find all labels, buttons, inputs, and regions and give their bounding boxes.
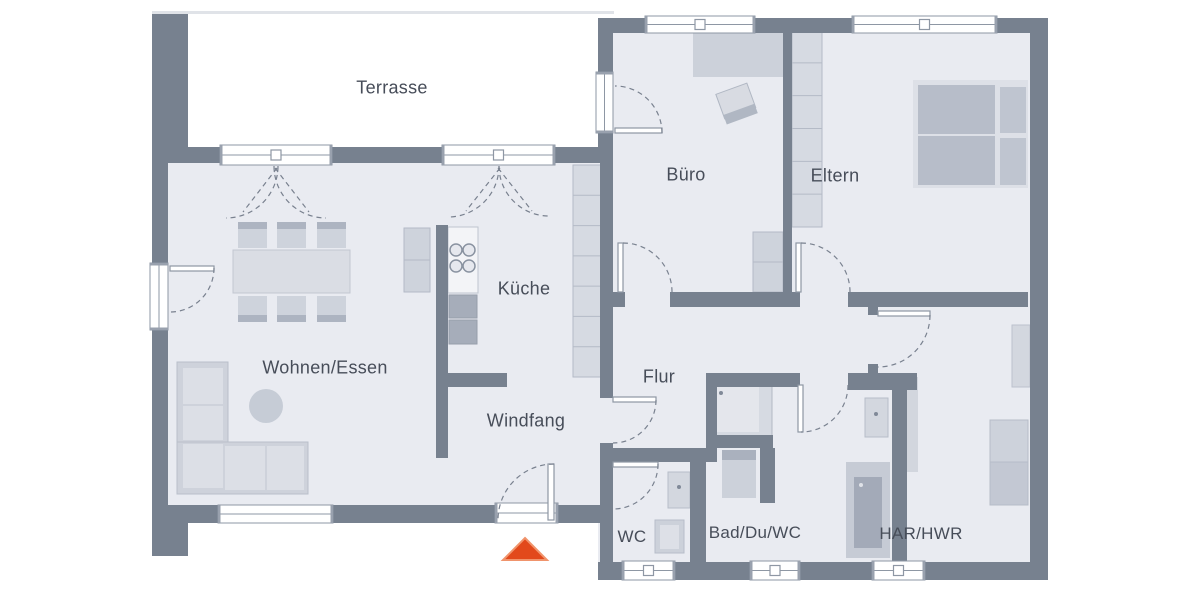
bad-sink [722, 460, 756, 498]
kitchen-counter [573, 165, 601, 377]
wall [868, 307, 878, 315]
room-label-har-hwr: HAR/HWR [879, 524, 962, 544]
kitchen-island [448, 227, 478, 293]
buero-terrace-door-jamb [596, 72, 613, 75]
bad-south-window-jamb [750, 561, 753, 580]
wall [152, 14, 188, 158]
eltern-door-swing-leaf [796, 243, 801, 292]
shower-drain [859, 483, 863, 487]
sofa-cushion [225, 446, 265, 490]
entrance-door-frame-jamb [556, 503, 559, 523]
room-label-kueche: Küche [498, 279, 551, 300]
wc-toilet [668, 472, 690, 508]
washer [990, 420, 1028, 462]
har-south-window-jamb [923, 561, 926, 580]
buero-north-window-jamb [753, 16, 756, 33]
wc-sink-basin [660, 525, 679, 549]
bed-mattress [918, 85, 995, 134]
bad-toilet [865, 398, 888, 437]
buero-door-swing-leaf [618, 243, 623, 292]
entrance-door-frame-jamb [495, 503, 498, 523]
terrace-door-left-jamb [330, 145, 333, 165]
wall [690, 448, 706, 563]
eltern-north-window-jamb [852, 16, 855, 33]
wall [1030, 18, 1048, 580]
bed-pillow [1000, 87, 1026, 133]
bathtub-drain [719, 391, 723, 395]
wall [152, 158, 168, 505]
chair-backrest [317, 222, 346, 229]
bad-toilet-dot [874, 412, 878, 416]
har-cabinet [1012, 325, 1030, 387]
terrace-door-right-center-mark [494, 150, 504, 160]
entrance-arrow [503, 538, 547, 560]
wc-south-window-jamb [622, 561, 625, 580]
living-west-door-swing-leaf [170, 266, 214, 271]
chair-backrest [277, 315, 306, 322]
sofa-cushion [267, 446, 304, 490]
har-south-window-center-mark [894, 566, 904, 576]
room-label-wohnen-essen: Wohnen/Essen [262, 358, 387, 379]
room-label-terrasse: Terrasse [356, 78, 427, 99]
wall [848, 292, 1028, 307]
buero-terrace-door-jamb [596, 131, 613, 134]
terrace-door-left-jamb [220, 145, 223, 165]
desk [693, 32, 783, 77]
wall [600, 147, 613, 398]
chair-backrest [277, 222, 306, 229]
eltern-north-window-jamb [995, 16, 998, 33]
coffee-table [249, 389, 283, 423]
wall [706, 373, 717, 462]
wall [600, 443, 613, 580]
living-west-door-jamb [150, 328, 168, 331]
wall [706, 435, 773, 448]
terrace-door-right-jamb [553, 145, 556, 165]
floorplan-svg [0, 0, 1200, 600]
dining-table [233, 250, 350, 293]
sofa-cushion [183, 444, 223, 488]
cooktop-burner [450, 244, 462, 256]
living-south-window-jamb [331, 505, 334, 523]
bad-south-window-jamb [798, 561, 801, 580]
wc-south-window-jamb [673, 561, 676, 580]
wc-door-swing-leaf [613, 462, 658, 467]
shower-tray [854, 477, 882, 548]
eltern-north-window-center-mark [920, 20, 930, 30]
wc-south-window-center-mark [644, 566, 654, 576]
oven [449, 320, 477, 344]
room-label-windfang: Windfang [487, 411, 565, 432]
room-label-bad-du-wc: Bad/Du/WC [709, 523, 801, 543]
wall [783, 28, 792, 297]
har-south-window-jamb [872, 561, 875, 580]
buero-terrace-door-swing-leaf [615, 128, 662, 133]
wall [670, 292, 783, 307]
wall [613, 292, 625, 307]
bad-south-window-center-mark [770, 566, 780, 576]
room-label-buero: Büro [666, 165, 705, 186]
room-label-wc: WC [618, 527, 647, 547]
entrance-door-swing-leaf [548, 464, 554, 520]
cooktop-burner [450, 260, 462, 272]
terrace-door-left-center-mark [271, 150, 281, 160]
wall [448, 373, 507, 387]
har-wall-shadow [907, 377, 918, 472]
bad-door-swing-leaf [798, 385, 803, 432]
bed-pillow [1000, 138, 1026, 185]
living-west-door-jamb [150, 263, 168, 266]
floorplan: Terrasse Wohnen/Essen Küche Windfang Flu… [0, 0, 1200, 600]
sofa-cushion [183, 406, 223, 440]
wall [436, 225, 448, 458]
cooktop-burner [463, 260, 475, 272]
wall [868, 364, 878, 375]
wall [760, 448, 775, 503]
chair-backrest [317, 315, 346, 322]
chair-backrest [238, 222, 267, 229]
buero-north-window-jamb [645, 16, 648, 33]
room-label-flur: Flur [643, 367, 675, 388]
wall [706, 373, 800, 387]
living-south-window-jamb [218, 505, 221, 523]
oven [449, 295, 477, 318]
sofa-cushion [183, 368, 223, 404]
room-label-eltern: Eltern [811, 166, 860, 187]
wc-toilet-dot [677, 485, 681, 489]
buero-north-window-center-mark [695, 20, 705, 30]
dryer [990, 462, 1028, 505]
terrace-door-right-jamb [442, 145, 445, 165]
chair-backrest [238, 315, 267, 322]
har-door-swing-leaf [878, 311, 930, 316]
bad-sink-top [722, 450, 756, 460]
cooktop-burner [463, 244, 475, 256]
terrace-slab-edge [152, 11, 614, 14]
flur-door-swing-leaf [613, 397, 656, 402]
bed-mattress [918, 136, 995, 185]
